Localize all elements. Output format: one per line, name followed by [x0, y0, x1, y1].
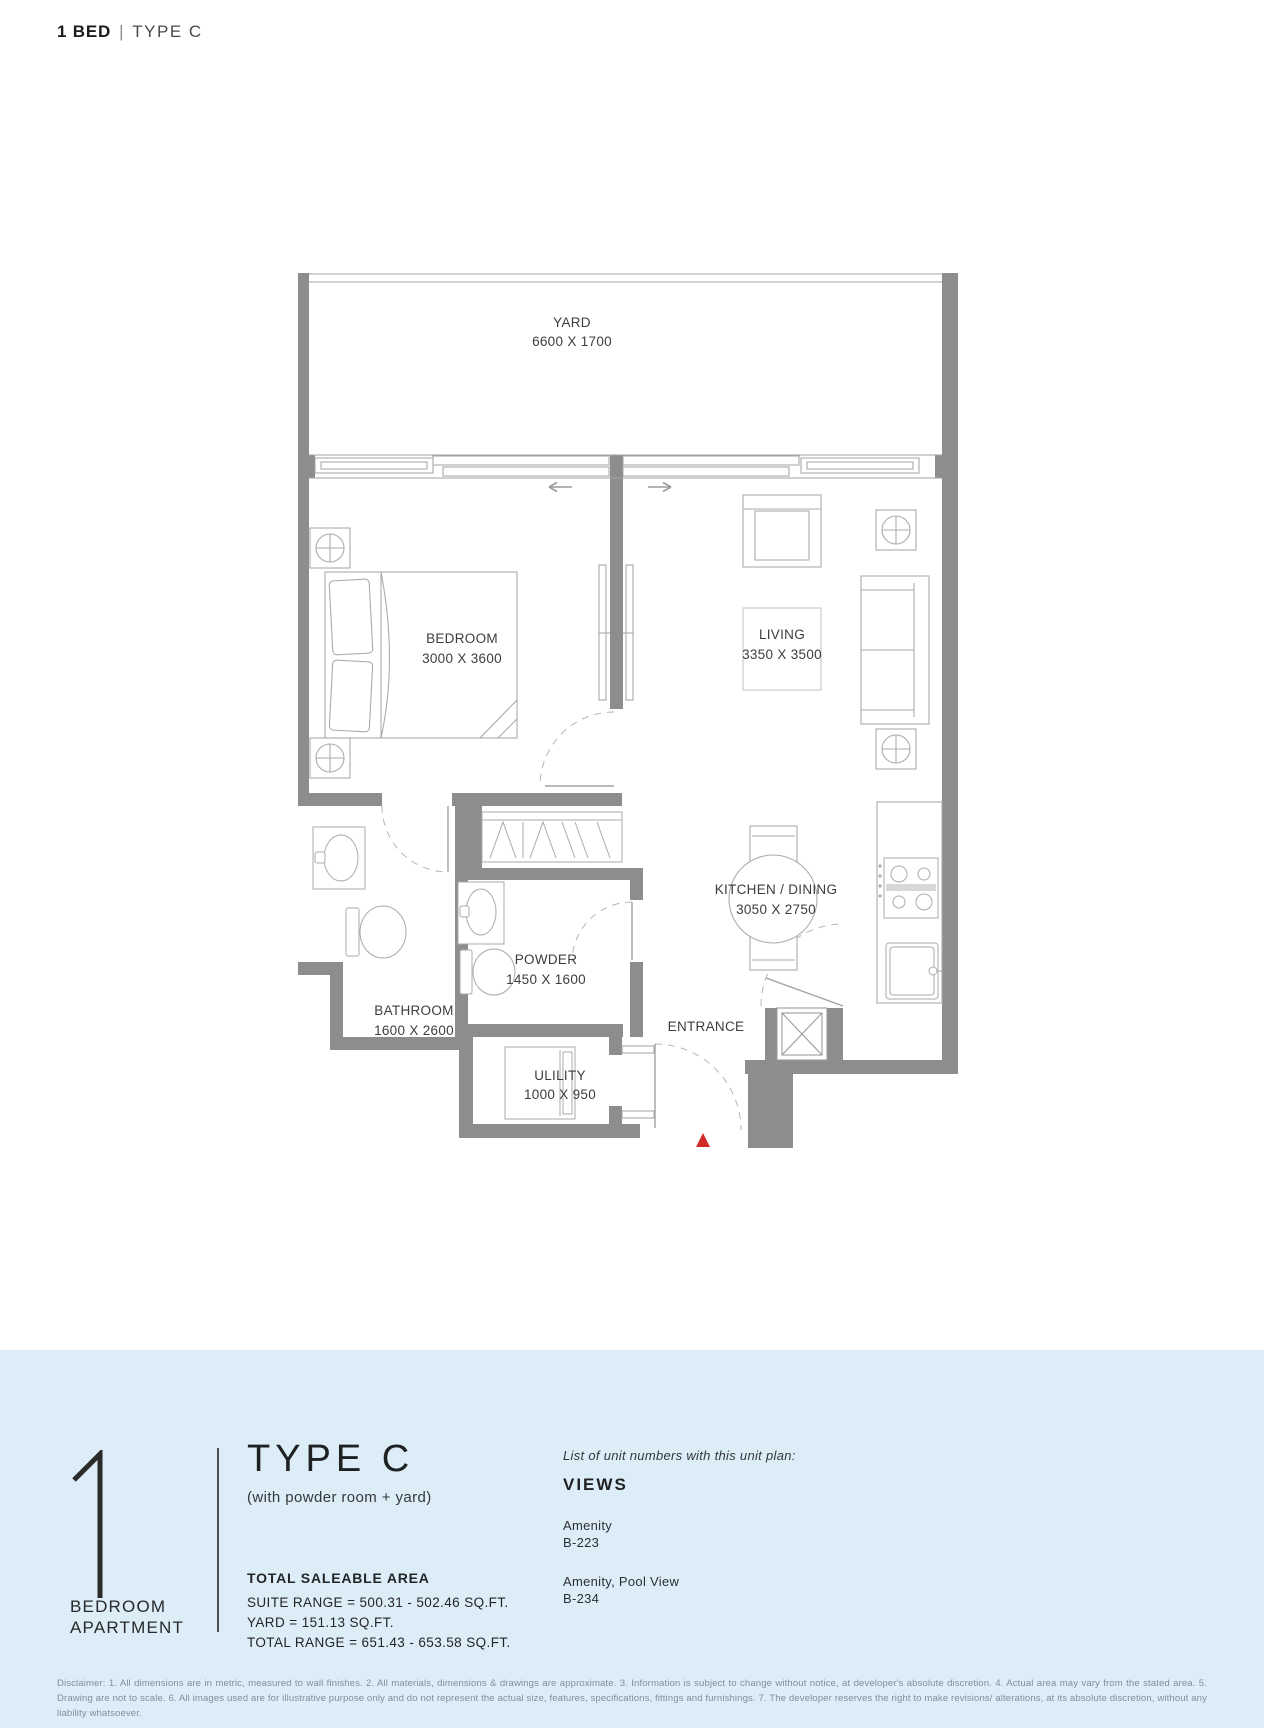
sofa [861, 576, 929, 724]
type-title: TYPE C [247, 1438, 414, 1481]
powder-sink [458, 882, 504, 944]
washer [505, 1047, 575, 1119]
kitchen-sink [886, 943, 942, 999]
area-line-yard: YARD = 151.13 SQ.FT. [247, 1613, 511, 1633]
stove [878, 858, 938, 918]
floor-plan: YARD 6600 X 1700 BEDROOM 3000 X 3600 LIV… [0, 0, 1264, 1180]
room-label-powder: POWDER [515, 952, 578, 967]
room-dims-living: 3350 X 3500 [742, 647, 822, 662]
unit-number-numeral [70, 1450, 110, 1600]
bathroom-toilet [346, 906, 406, 958]
room-dims-bedroom: 3000 X 3600 [422, 651, 502, 666]
views-intro: List of unit numbers with this unit plan… [563, 1448, 796, 1463]
view-item: Amenity, Pool View B-234 [563, 1573, 796, 1607]
room-label-utility: ULILITY [534, 1068, 586, 1083]
area-heading: TOTAL SALEABLE AREA [247, 1570, 511, 1586]
dining-table [729, 826, 817, 970]
view-item: Amenity B-223 [563, 1517, 796, 1551]
room-dims-powder: 1450 X 1600 [506, 972, 586, 987]
yard-sliding-windows [309, 455, 942, 478]
view-name: Amenity, Pool View [563, 1573, 796, 1590]
room-label-yard: YARD [553, 315, 591, 330]
area-line-total: TOTAL RANGE = 651.43 - 653.58 SQ.FT. [247, 1633, 511, 1653]
views-panel: List of unit numbers with this unit plan… [563, 1448, 796, 1607]
room-label-living: LIVING [759, 627, 805, 642]
unit-word-1: BEDROOM [70, 1596, 184, 1617]
type-subtitle: (with powder room + yard) [247, 1489, 432, 1506]
armchair [743, 495, 821, 567]
yard-outline [309, 274, 942, 282]
views-heading: VIEWS [563, 1475, 796, 1495]
disclaimer: Disclaimer: 1. All dimensions are in met… [57, 1676, 1207, 1721]
bathroom-sink [313, 827, 365, 889]
entrance-label: ENTRANCE [668, 1019, 745, 1034]
view-unit: B-234 [563, 1590, 796, 1607]
utility-door [622, 1046, 654, 1118]
saleable-area: TOTAL SALEABLE AREA SUITE RANGE = 500.31… [247, 1570, 511, 1653]
brochure-page: 1 BED|TYPE C [0, 0, 1264, 1728]
room-dims-yard: 6600 X 1700 [532, 334, 612, 349]
info-band: 1 BEDROOM APARTMENT TYPE C (with powder … [0, 1350, 1264, 1728]
entrance-marker-icon [696, 1133, 710, 1147]
room-label-bedroom: BEDROOM [426, 631, 498, 646]
unit-number-text: 1 [0, 1350, 1, 1351]
shaft [777, 1008, 827, 1060]
room-dims-bathroom: 1600 X 2600 [374, 1023, 454, 1038]
unit-type-words: BEDROOM APARTMENT [70, 1596, 184, 1638]
closet [482, 812, 622, 862]
room-label-bathroom: BATHROOM [374, 1003, 453, 1018]
room-dims-utility: 1000 X 950 [524, 1087, 596, 1102]
area-line-suite: SUITE RANGE = 500.31 - 502.46 SQ.FT. [247, 1593, 511, 1613]
vertical-divider [217, 1448, 219, 1632]
room-label-kitchen: KITCHEN / DINING [715, 882, 838, 897]
view-unit: B-223 [563, 1534, 796, 1551]
room-dims-kitchen: 3050 X 2750 [736, 902, 816, 917]
unit-word-2: APARTMENT [70, 1617, 184, 1638]
view-name: Amenity [563, 1517, 796, 1534]
